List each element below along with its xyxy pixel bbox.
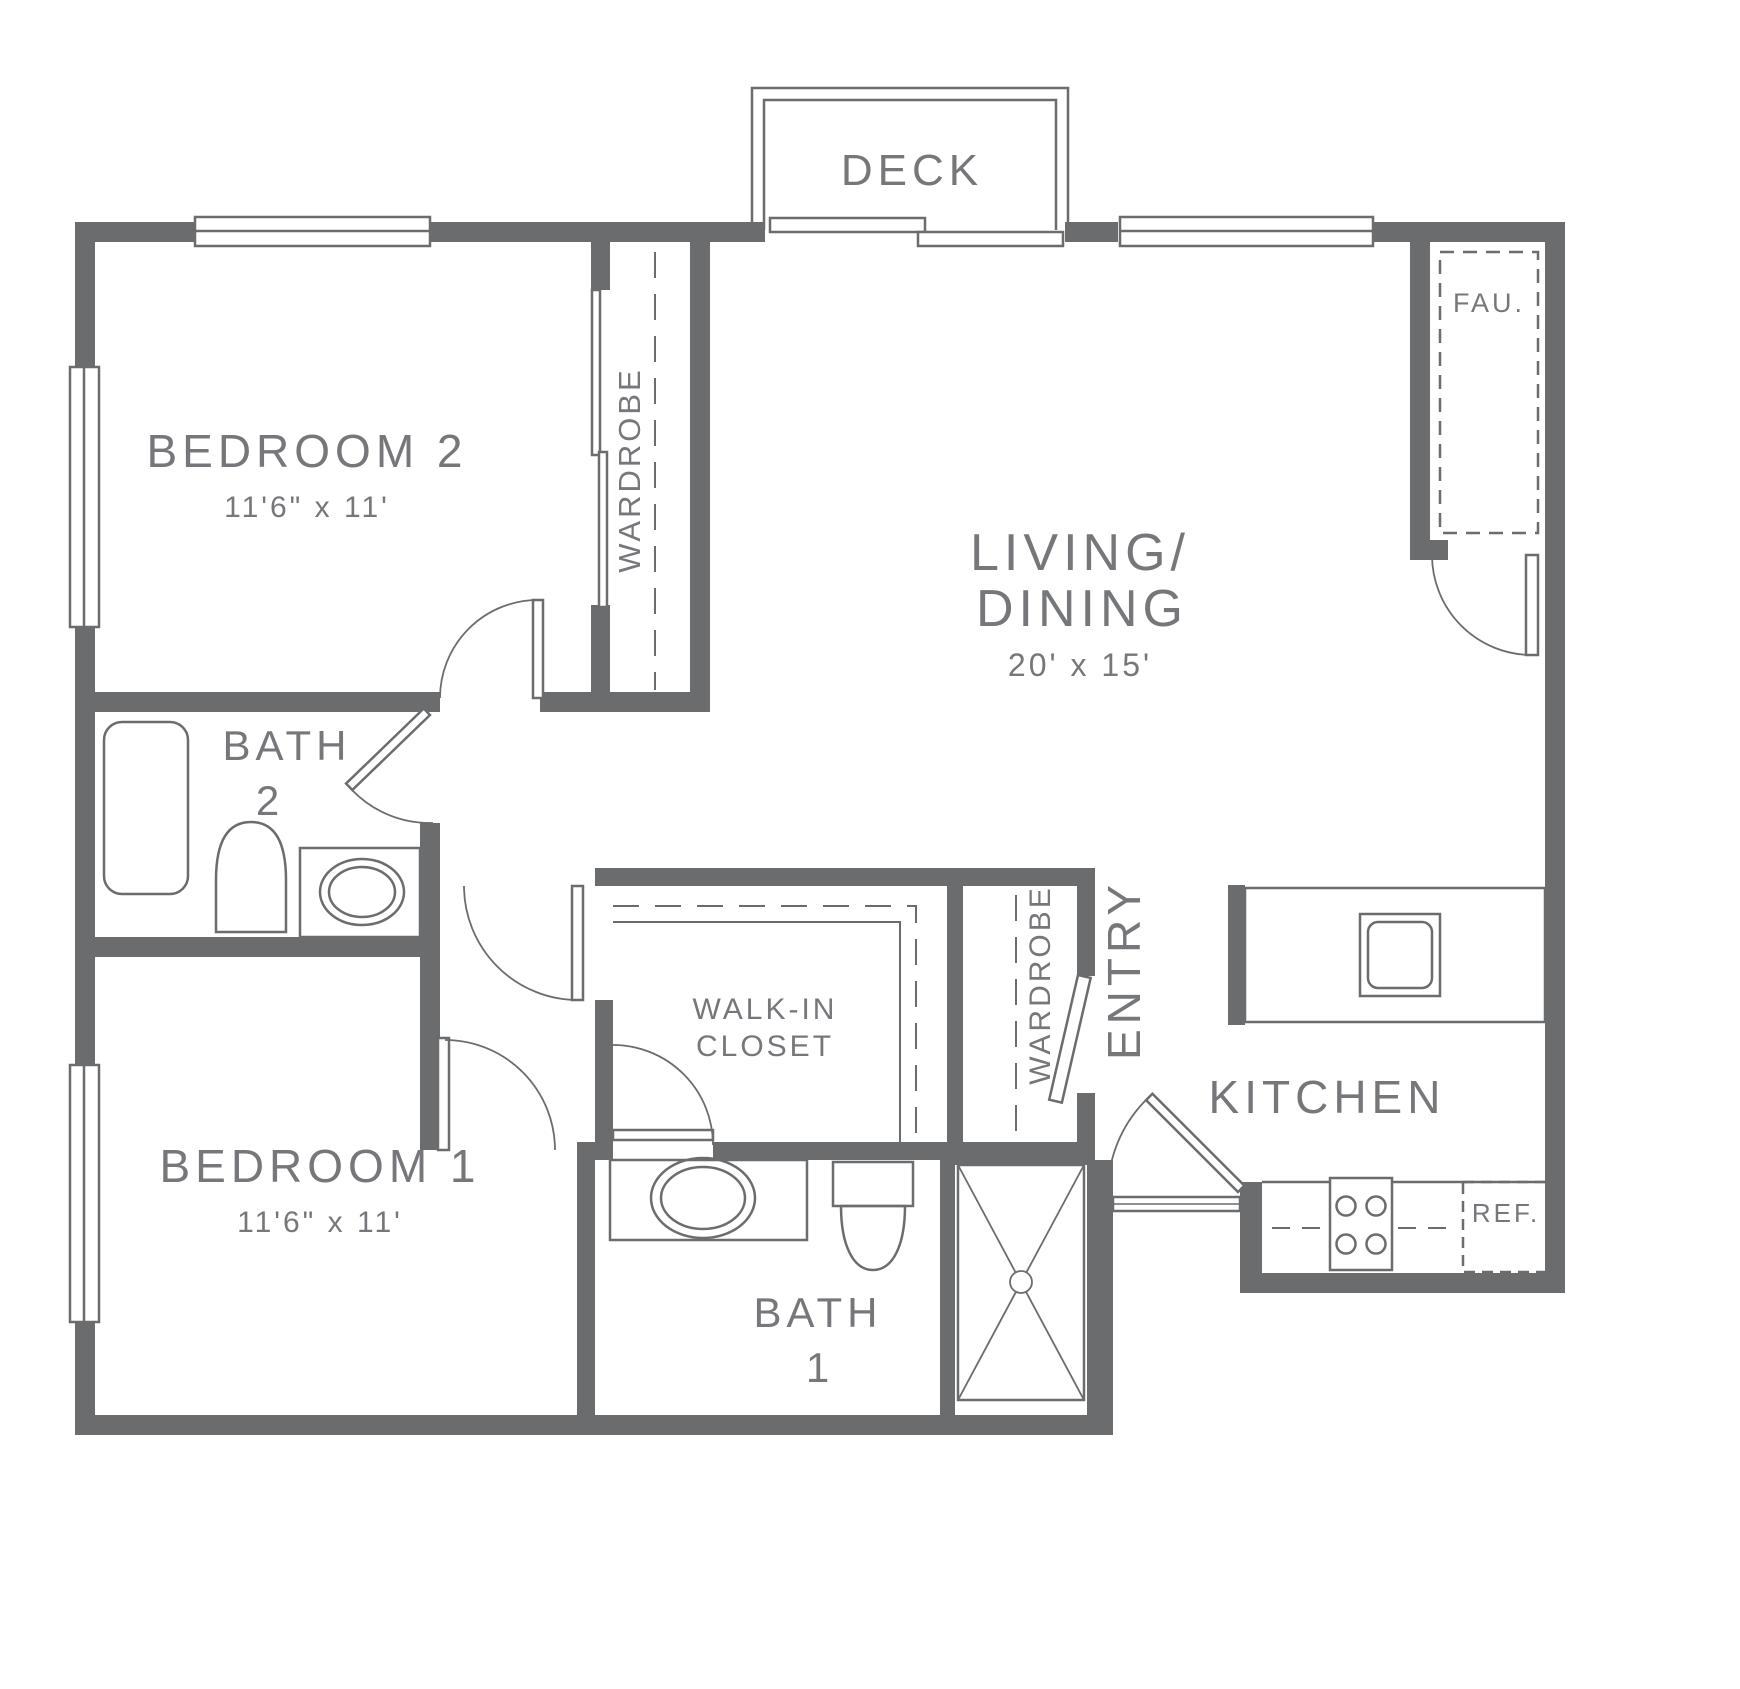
bedroom1-label: BEDROOM 1 xyxy=(159,1140,480,1192)
island-sink-inner xyxy=(1368,922,1432,988)
refrigerator-label: REF. xyxy=(1472,1198,1540,1228)
wall-entry-right-stub xyxy=(1240,1182,1262,1293)
wall-bottom xyxy=(75,1415,1113,1435)
bath2-sink-inner xyxy=(329,867,395,917)
stove xyxy=(1330,1178,1392,1270)
bath1-label-line1: BATH xyxy=(754,1289,883,1336)
wall-shower-left xyxy=(940,1160,955,1415)
wall-wardrobe2-stub-bottom xyxy=(591,605,610,692)
bath1-label-line2: 1 xyxy=(806,1344,834,1391)
bath2-door-arc xyxy=(352,790,433,823)
bath2-door-leaf xyxy=(346,709,430,790)
living-label-line1: LIVING/ xyxy=(970,524,1190,582)
wall-hall-north-east xyxy=(540,692,710,712)
deck-label: DECK xyxy=(841,146,983,195)
bath2-sink-counter xyxy=(300,848,420,937)
wall-bath1-right xyxy=(1087,1160,1113,1435)
wall-top-4 xyxy=(1373,222,1565,242)
bath2-toilet xyxy=(216,822,286,932)
wardrobe2-slider-1 xyxy=(592,290,600,455)
kitchen-label: KITCHEN xyxy=(1209,1071,1446,1123)
entry-label: ENTRY xyxy=(1098,880,1150,1060)
walk-in-closet-label-line1: WALK-IN xyxy=(693,993,838,1026)
wall-top-3 xyxy=(1065,222,1118,242)
wall-wardrobe-entry-bottom xyxy=(947,1147,1095,1165)
bedroom2-door-arc xyxy=(440,600,538,698)
fau-door-leaf xyxy=(1526,555,1538,655)
bath2-label-line1: BATH xyxy=(223,722,352,769)
bedroom1-dims: 11'6" x 11' xyxy=(237,1206,403,1239)
floor-plan: DECK BEDROOM 2 11'6" x 11' LIVING/ DININ… xyxy=(0,0,1740,1689)
bath1-toilet-tank xyxy=(833,1162,913,1206)
wall-island-stub xyxy=(1228,885,1245,1025)
bedroom2-label: BEDROOM 2 xyxy=(146,425,467,477)
bedroom1-door-leaf xyxy=(438,1038,449,1150)
wardrobe2-label: WARDROBE xyxy=(612,367,647,572)
deck-slider-panel-left xyxy=(770,218,925,232)
wall-fau-bottom-stub xyxy=(1410,540,1448,560)
bath1-sink-outer xyxy=(651,1158,755,1238)
wall-wardrobe-entry-stub-top xyxy=(1077,886,1095,976)
bath2-sink-outer xyxy=(320,859,404,925)
wall-bath2-bottom xyxy=(75,937,440,957)
bath1-sink-inner xyxy=(661,1167,745,1229)
living-dims: 20' x 15' xyxy=(1008,647,1152,683)
deck-slider-panel-right xyxy=(918,232,1063,246)
bedroom1-door-arc xyxy=(445,1040,555,1150)
wall-left-1 xyxy=(75,222,95,367)
wall-top-2 xyxy=(430,222,765,242)
fau-door-arc xyxy=(1432,555,1532,655)
wall-bath1-top-west xyxy=(577,1142,613,1160)
wall-bedroom1-east xyxy=(577,1160,595,1415)
wall-wardrobe-entry-west xyxy=(947,886,963,1147)
closet-door-arc xyxy=(464,886,578,1000)
wall-wardrobe-entry-stub-bottom xyxy=(1077,1093,1095,1147)
wall-hall-north-west xyxy=(75,692,440,712)
shower-drain xyxy=(1010,1271,1032,1293)
bath1-door-leaf xyxy=(613,1130,713,1140)
closet-door-leaf xyxy=(572,886,583,1000)
bedroom2-door-leaf xyxy=(533,600,543,698)
wall-closet-west xyxy=(595,1000,613,1150)
entry-door-arc xyxy=(1108,1100,1146,1192)
wall-closet-top xyxy=(595,868,1095,886)
wall-kitchen-bottom xyxy=(1240,1273,1565,1293)
bath2-tub xyxy=(104,722,188,894)
wardrobe2-slider-2 xyxy=(599,452,607,607)
living-label-line2: DINING xyxy=(976,580,1188,638)
bath1-toilet-bowl xyxy=(841,1206,905,1270)
walk-in-closet-label-line2: CLOSET xyxy=(696,1030,834,1063)
wall-wardrobe2-stub-top xyxy=(591,242,610,290)
kitchen-island xyxy=(1245,888,1545,1022)
fau-label: FAU. xyxy=(1453,288,1525,318)
wall-fau-left xyxy=(1410,242,1430,560)
island-sink-outer xyxy=(1360,914,1440,996)
wall-right xyxy=(1545,222,1565,1293)
bedroom2-dims: 11'6" x 11' xyxy=(224,491,390,524)
wall-living-west xyxy=(690,242,710,712)
wardrobe-entry-label: WARDROBE xyxy=(1024,885,1057,1085)
bath2-label-line2: 2 xyxy=(256,777,284,824)
